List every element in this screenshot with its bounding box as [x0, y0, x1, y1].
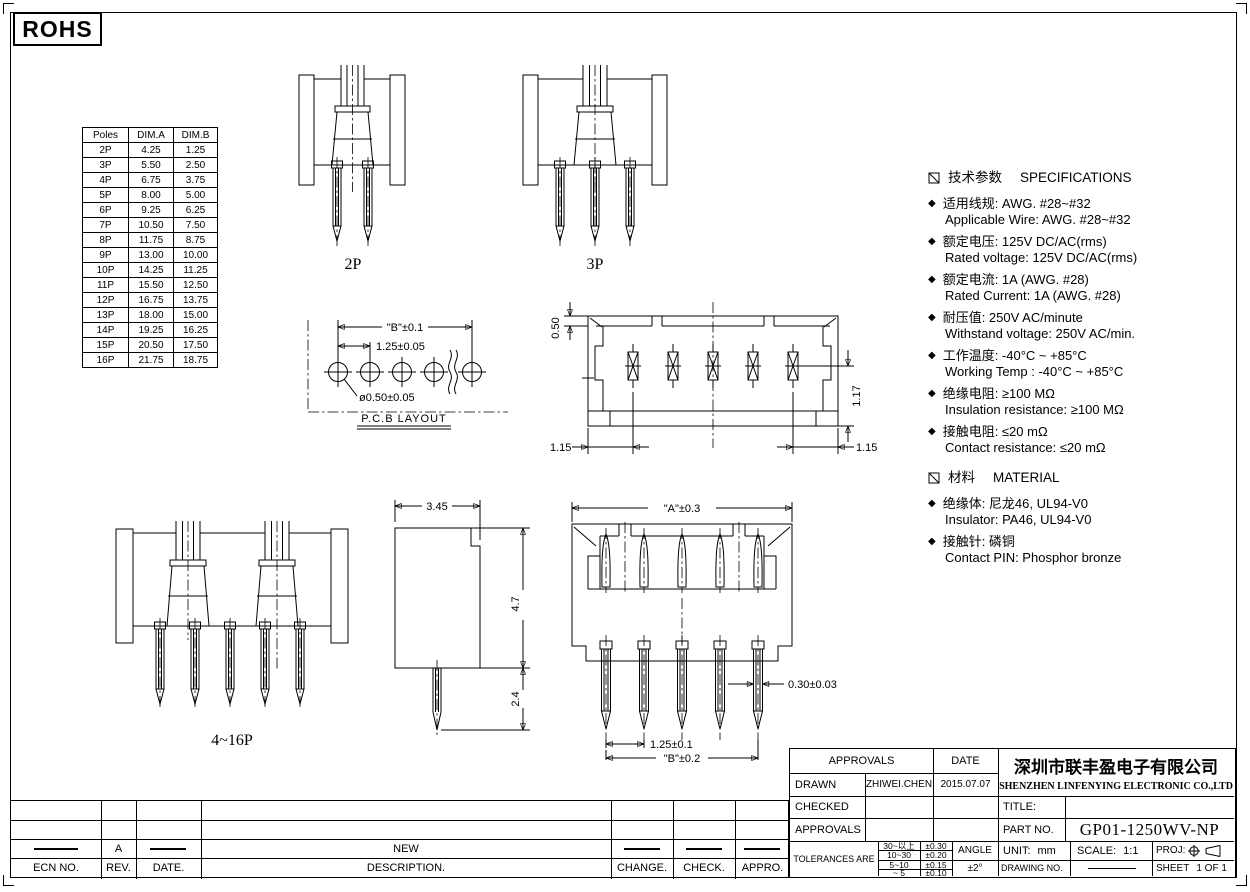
check-placeholder-dash: [686, 848, 722, 850]
scale-label: SCALE:: [1077, 845, 1116, 857]
spec-text-zh: 绝缘体: 尼龙46, UL94-V0: [943, 496, 1088, 512]
tolerance-value: ±0.10: [920, 869, 952, 876]
approvals-row-label: APPROVALS: [795, 818, 865, 841]
connector-3p-outline: [523, 65, 667, 247]
dim-pitch: 1.25±0.05: [376, 341, 425, 353]
material-header-zh: 材料: [948, 470, 975, 486]
spec-text-en: Working Temp : -40°C ~ +85°C: [928, 364, 1220, 380]
specs-header: 技术参数 SPECIFICATIONS: [928, 170, 1220, 186]
table-row: 9P13.0010.00: [83, 248, 218, 263]
spec-item: ◆绝缘体: 尼龙46, UL94-V0Insulator: PA46, UL94…: [928, 496, 1220, 528]
corner-mark: [1236, 875, 1247, 886]
table-row: 15P20.5017.50: [83, 338, 218, 353]
dim-depth: 0.50: [550, 317, 562, 338]
dim-height: 1.17: [851, 385, 863, 406]
part-number: GP01-1250WV-NP: [1065, 818, 1234, 841]
drawing-pcb-layout: "B"±0.1 1.25±0.05 ø0.50±0.05 P.C.B LAYOU…: [300, 300, 512, 434]
rev-col-date: DATE.: [136, 858, 201, 878]
company-name-zh: 深圳市联丰盈电子有限公司: [998, 751, 1234, 779]
table-row: 5P8.005.00: [83, 188, 218, 203]
appro-placeholder-dash: [744, 848, 780, 850]
sheet-label: SHEET: [1156, 863, 1189, 874]
company-name-en: SHENZHEN LINFENYING ELECTRONIC CO.,LTD: [998, 778, 1234, 794]
diamond-bullet-icon: ◆: [928, 272, 936, 288]
spec-text-en: Rated Current: 1A (AWG. #28): [928, 288, 1220, 304]
diamond-bullet-icon: ◆: [928, 196, 936, 212]
table-header-row: Poles DIM.A DIM.B: [83, 128, 218, 143]
date-placeholder-dash: [150, 848, 186, 850]
drawing-3p-view: 3P: [520, 64, 670, 276]
drawn-date: 2015.07.07: [933, 773, 998, 796]
dim-edge-right: 1.15: [856, 442, 877, 454]
poles-table-body: 2P4.251.253P5.502.504P6.753.755P8.005.00…: [83, 143, 218, 368]
col-header-dim-a: DIM.A: [129, 128, 174, 143]
dim-a-span: "A"±0.3: [664, 503, 700, 515]
unit-label: UNIT:: [1003, 845, 1031, 857]
diamond-bullet-icon: ◆: [928, 310, 936, 326]
spec-text-zh: 接触针: 磷铜: [943, 534, 1015, 550]
diamond-bullet-icon: ◆: [928, 386, 936, 402]
revision-description: NEW: [201, 839, 611, 858]
sheet-cell: SHEET 1 OF 1: [1156, 860, 1234, 876]
spec-text-zh: 适用线规: AWG. #28~#32: [943, 196, 1091, 212]
checked-label: CHECKED: [795, 796, 865, 818]
col-header-dim-b: DIM.B: [174, 128, 218, 143]
table-row: 6P9.256.25: [83, 203, 218, 218]
section-marker-icon: [928, 172, 940, 184]
drawing-side-view: 3.45 4.7 2.4: [380, 490, 570, 740]
rev-col-change: CHANGE.: [611, 858, 673, 878]
drawn-name: ZHIWEI.CHEN: [865, 773, 933, 796]
revision-table: A NEW ECN NO. REV. DATE. DESCRIPTION. CH…: [10, 800, 789, 878]
table-row: 12P16.7513.75: [83, 293, 218, 308]
specifications-section: 技术参数 SPECIFICATIONS ◆适用线规: AWG. #28~#32A…: [928, 170, 1220, 572]
material-header: 材料 MATERIAL: [928, 470, 1220, 486]
table-row: 13P18.0015.00: [83, 308, 218, 323]
spec-text-zh: 工作温度: -40°C ~ +85°C: [943, 348, 1087, 364]
spec-item: ◆适用线规: AWG. #28~#32Applicable Wire: AWG.…: [928, 196, 1220, 228]
top-view-contacts: [625, 344, 801, 388]
tolerance-range: 10~30: [878, 850, 920, 860]
poles-dimension-table: Poles DIM.A DIM.B 2P4.251.253P5.502.504P…: [82, 127, 218, 368]
rohs-logo: ROHS: [13, 12, 102, 46]
unit-value: mm: [1038, 845, 1056, 857]
tolerances-label: TOLERANCES ARE: [790, 841, 878, 876]
drawing-sheet: ROHS Poles DIM.A DIM.B 2P4.251.253P5.502…: [0, 0, 1250, 892]
diamond-bullet-icon: ◆: [928, 534, 936, 550]
drawing-no-label: DRAWING NO.: [1001, 860, 1069, 876]
rev-col-description: DESCRIPTION.: [201, 858, 611, 878]
scale-cell: SCALE: 1:1: [1077, 841, 1150, 860]
spec-text-en: Rated voltage: 125V DC/AC(rms): [928, 250, 1220, 266]
rev-col-appro: APPRO.: [735, 858, 790, 878]
ecn-placeholder-dash: [34, 848, 78, 850]
angle-value: ±2°: [952, 860, 998, 876]
rev-col-check: CHECK.: [673, 858, 735, 878]
table-row: 16P21.7518.75: [83, 353, 218, 368]
spec-text-en: Insulation resistance: ≥100 MΩ: [928, 402, 1220, 418]
table-row: 10P14.2511.25: [83, 263, 218, 278]
spec-text-zh: 接触电阻: ≤20 mΩ: [943, 424, 1048, 440]
spec-item: ◆额定电压: 125V DC/AC(rms)Rated voltage: 125…: [928, 234, 1220, 266]
spec-text-zh: 耐压值: 250V AC/minute: [943, 310, 1083, 326]
diamond-bullet-icon: ◆: [928, 424, 936, 440]
table-row: 7P10.507.50: [83, 218, 218, 233]
view-label-4-16p: 4~16P: [211, 732, 253, 749]
dim-body-width: 3.45: [426, 501, 447, 513]
specs-header-zh: 技术参数: [948, 170, 1002, 186]
spec-text-zh: 绝缘电阻: ≥100 MΩ: [943, 386, 1055, 402]
spec-item: ◆额定电流: 1A (AWG. #28)Rated Current: 1A (A…: [928, 272, 1220, 304]
date-header: DATE: [933, 749, 998, 773]
revision-letter: A: [101, 839, 136, 858]
diamond-bullet-icon: ◆: [928, 234, 936, 250]
tolerance-value: ±0.20: [920, 850, 952, 860]
connector-2p-outline: [299, 65, 405, 247]
spec-text-zh: 额定电压: 125V DC/AC(rms): [943, 234, 1107, 250]
diamond-bullet-icon: ◆: [928, 496, 936, 512]
dim-pin-length: 2.4: [510, 691, 522, 706]
tolerance-range: ~ 5: [878, 869, 920, 876]
spec-text-en: Insulator: PA46, UL94-V0: [928, 512, 1220, 528]
tolerance-range: 30~以上: [878, 841, 920, 850]
spec-text-en: Applicable Wire: AWG. #28~#32: [928, 212, 1220, 228]
pcb-layout-caption: P.C.B LAYOUT: [361, 413, 447, 425]
part-no-label: PART NO.: [1003, 818, 1063, 841]
drawing-4-16p-view: 4~16P: [113, 520, 351, 752]
proj-label: PROJ:: [1156, 845, 1185, 856]
spec-text-zh: 额定电流: 1A (AWG. #28): [943, 272, 1089, 288]
dim-pin-width: 0.30±0.03: [788, 679, 837, 691]
side-view-dimensions: 3.45 4.7 2.4: [395, 500, 530, 730]
table-row: 14P19.2516.25: [83, 323, 218, 338]
third-angle-projection-icon: [1187, 844, 1223, 858]
unit-cell: UNIT: mm: [1003, 841, 1068, 860]
connector-4-16p-outline: [116, 521, 348, 710]
angle-label: ANGLE: [952, 841, 998, 860]
spec-item: ◆绝缘电阻: ≥100 MΩInsulation resistance: ≥10…: [928, 386, 1220, 418]
spec-item: ◆接触针: 磷铜Contact PIN: Phosphor bronze: [928, 534, 1220, 566]
col-header-poles: Poles: [83, 128, 129, 143]
approvals-header: APPROVALS: [790, 749, 933, 773]
view-label-3p: 3P: [587, 256, 604, 273]
title-label: TITLE:: [1003, 796, 1063, 818]
drawing-no-placeholder-dash: [1088, 868, 1136, 869]
section-marker-icon: [928, 472, 940, 484]
table-row: 8P11.758.75: [83, 233, 218, 248]
diamond-bullet-icon: ◆: [928, 348, 936, 364]
tolerance-value: ±0.30: [920, 841, 952, 850]
rev-col-rev: REV.: [101, 858, 136, 878]
spec-text-en: Contact PIN: Phosphor bronze: [928, 550, 1220, 566]
spec-item: ◆工作温度: -40°C ~ +85°CWorking Temp : -40°C…: [928, 348, 1220, 380]
view-label-2p: 2P: [345, 256, 362, 273]
dim-edge-left: 1.15: [550, 442, 571, 454]
drawing-front-view: "A"±0.3 0.30±0.03 1.25±0.1 "B"±0.2: [560, 494, 854, 766]
side-view-outline: [395, 528, 480, 737]
dim-span-b: "B"±0.1: [387, 322, 423, 334]
drawing-top-view: 0.50 1.17 1.15 1.15: [548, 286, 870, 466]
drawing-2p-view: 2P: [296, 64, 426, 276]
dim-hole-diameter: ø0.50±0.05: [359, 392, 415, 404]
front-view-dimensions: "A"±0.3 0.30±0.03 1.25±0.1 "B"±0.2: [572, 502, 837, 765]
spec-item: ◆接触电阻: ≤20 mΩContact resistance: ≤20 mΩ: [928, 424, 1220, 456]
spec-text-en: Withstand voltage: 250V AC/min.: [928, 326, 1220, 342]
table-row: 3P5.502.50: [83, 158, 218, 173]
spec-text-en: Contact resistance: ≤20 mΩ: [928, 440, 1220, 456]
dim-pin-pitch: 1.25±0.1: [650, 739, 693, 751]
caption-underline: [357, 426, 451, 429]
table-row: 11P15.5012.50: [83, 278, 218, 293]
sheet-value: 1 OF 1: [1196, 863, 1227, 874]
specs-items-list: ◆适用线规: AWG. #28~#32Applicable Wire: AWG.…: [928, 196, 1220, 456]
table-row: 2P4.251.25: [83, 143, 218, 158]
table-row: 4P6.753.75: [83, 173, 218, 188]
rev-col-ecn: ECN NO.: [11, 858, 101, 878]
material-items-list: ◆绝缘体: 尼龙46, UL94-V0Insulator: PA46, UL94…: [928, 496, 1220, 566]
drawn-label: DRAWN: [795, 773, 865, 796]
corner-mark: [1236, 3, 1247, 14]
front-view-outline: [572, 522, 792, 740]
specs-header-en: SPECIFICATIONS: [1020, 170, 1132, 186]
title-block: APPROVALS DATE DRAWN ZHIWEI.CHEN 2015.07…: [789, 748, 1236, 878]
solder-pins: [600, 635, 764, 740]
projection-cell: PROJ:: [1156, 841, 1234, 860]
mating-pins: [602, 528, 762, 593]
spec-item: ◆耐压值: 250V AC/minuteWithstand voltage: 2…: [928, 310, 1220, 342]
dim-body-height: 4.7: [510, 596, 522, 611]
dim-b-span: "B"±0.2: [664, 753, 700, 765]
scale-value: 1:1: [1123, 845, 1138, 857]
change-placeholder-dash: [624, 848, 660, 850]
material-header-en: MATERIAL: [993, 470, 1060, 486]
